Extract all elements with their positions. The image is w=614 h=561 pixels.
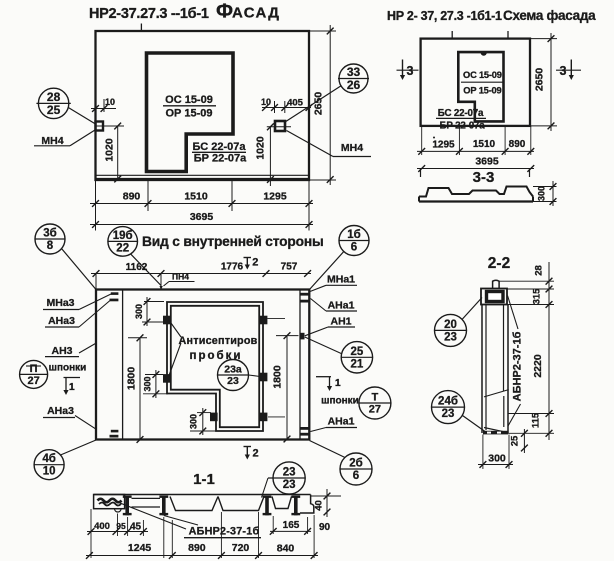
svg-text:Ф: Ф (216, 1, 233, 23)
svg-text:21: 21 (351, 358, 364, 370)
svg-text:24б: 24б (438, 396, 458, 408)
svg-text:АНа1: АНа1 (328, 416, 355, 428)
svg-text:1510: 1510 (473, 139, 496, 150)
svg-text:315: 315 (532, 288, 543, 305)
svg-text:БС 22-07а: БС 22-07а (192, 141, 246, 153)
svg-text:Вид с внутренней стороны: Вид с внутренней стороны (142, 234, 324, 249)
svg-text:Т: Т (372, 392, 379, 404)
svg-text:Схема фасада: Схема фасада (503, 8, 596, 23)
svg-text:23: 23 (283, 467, 296, 479)
svg-text:шпонки: шпонки (49, 363, 87, 374)
svg-text:1245: 1245 (128, 542, 152, 554)
svg-text:23а: 23а (224, 364, 242, 376)
svg-text:ОР 15-09: ОР 15-09 (165, 108, 212, 120)
svg-text:300: 300 (537, 186, 547, 201)
svg-text:45: 45 (130, 522, 142, 533)
svg-text:1: 1 (69, 381, 75, 393)
svg-text:2220: 2220 (532, 354, 544, 378)
svg-text:3: 3 (560, 64, 567, 78)
svg-text:АБНР2-37-1б: АБНР2-37-1б (189, 526, 260, 538)
svg-text:10: 10 (105, 97, 115, 107)
svg-text:2650: 2650 (534, 68, 546, 92)
svg-text:8: 8 (47, 240, 54, 252)
svg-text:28: 28 (534, 265, 545, 276)
svg-text:22: 22 (116, 242, 129, 254)
svg-text:3-3: 3-3 (473, 169, 495, 186)
svg-text:шпонки: шпонки (321, 396, 359, 407)
svg-text:3695: 3695 (190, 211, 214, 223)
svg-text:890: 890 (509, 139, 526, 150)
svg-text:ОС 15-09: ОС 15-09 (463, 70, 502, 80)
svg-text:3: 3 (407, 64, 414, 78)
svg-text:25: 25 (510, 435, 521, 446)
svg-text:840: 840 (277, 543, 295, 555)
svg-text:23: 23 (227, 375, 239, 387)
svg-text:1020: 1020 (103, 138, 115, 162)
svg-text:БР 22-07а: БР 22-07а (439, 120, 485, 131)
svg-text:АНа3: АНа3 (47, 405, 74, 417)
svg-text:МНа1: МНа1 (327, 274, 355, 286)
svg-text:300: 300 (134, 304, 144, 319)
svg-text:1020: 1020 (254, 136, 266, 160)
svg-text:27: 27 (27, 375, 39, 387)
svg-text:АН3: АН3 (51, 345, 72, 357)
svg-text:АНа3: АНа3 (48, 315, 75, 327)
svg-text:3б: 3б (43, 228, 57, 240)
svg-text:АНа1: АНа1 (328, 300, 355, 312)
svg-text:6: 6 (353, 470, 359, 482)
svg-text:890: 890 (123, 191, 141, 203)
svg-text:БС 22-07а: БС 22-07а (438, 108, 484, 119)
svg-text:33: 33 (347, 65, 361, 79)
svg-text:757: 757 (281, 262, 298, 273)
svg-text:405: 405 (287, 98, 304, 109)
svg-text:165: 165 (283, 520, 300, 531)
svg-text:3695: 3695 (475, 156, 499, 168)
svg-text:90: 90 (319, 522, 331, 533)
svg-text:1776: 1776 (221, 262, 244, 273)
svg-text:1800: 1800 (125, 367, 137, 391)
svg-text:НР 2- 37, 27.3 -1б1-1: НР 2- 37, 27.3 -1б1-1 (387, 9, 502, 23)
svg-text:26: 26 (347, 78, 361, 92)
svg-text:ОС 15-09: ОС 15-09 (165, 94, 213, 106)
svg-text:720: 720 (232, 542, 250, 554)
svg-text:10: 10 (43, 466, 56, 478)
svg-text:П: П (30, 363, 38, 375)
svg-text:2-2: 2-2 (488, 255, 510, 272)
svg-text:2: 2 (252, 448, 258, 460)
svg-text:1510: 1510 (184, 191, 208, 203)
svg-text:23: 23 (442, 408, 455, 420)
svg-text:1б: 1б (347, 229, 361, 241)
svg-text:4б: 4б (42, 453, 56, 465)
svg-text:25: 25 (351, 346, 364, 358)
svg-text:300: 300 (188, 414, 198, 429)
svg-text:20: 20 (444, 319, 457, 331)
svg-text:300: 300 (143, 376, 153, 391)
svg-text:1295: 1295 (432, 140, 455, 151)
svg-text:23: 23 (444, 331, 457, 343)
svg-text:27: 27 (369, 404, 381, 416)
svg-text:400: 400 (94, 521, 110, 532)
svg-text:1-1: 1-1 (193, 471, 215, 488)
svg-text:23: 23 (283, 479, 296, 491)
svg-text:Антисептиров: Антисептиров (179, 335, 258, 347)
svg-text:2: 2 (252, 257, 258, 269)
svg-text:БР 22-07а: БР 22-07а (194, 153, 247, 165)
svg-text:АСАД: АСАД (232, 5, 280, 22)
svg-text:ОР 15-09: ОР 15-09 (463, 86, 501, 96)
svg-text:1295: 1295 (263, 191, 287, 203)
svg-text:6: 6 (351, 242, 357, 254)
svg-text:19б: 19б (113, 230, 133, 242)
svg-text:890: 890 (188, 542, 206, 554)
svg-text:НР2-37.27.3 --1б-1: НР2-37.27.3 --1б-1 (89, 6, 209, 22)
svg-text:1: 1 (335, 377, 341, 389)
svg-text:МНа3: МНа3 (46, 297, 74, 309)
svg-text:25: 25 (47, 103, 61, 117)
svg-text:МН4: МН4 (341, 142, 363, 154)
svg-text:115: 115 (531, 412, 542, 428)
svg-text:95: 95 (116, 521, 126, 531)
svg-text:АН1: АН1 (330, 316, 351, 328)
svg-text:300: 300 (488, 453, 506, 465)
svg-text:40: 40 (314, 500, 325, 511)
svg-text:АБНР2-37-1б: АБНР2-37-1б (512, 331, 524, 401)
svg-text:1800: 1800 (272, 365, 284, 389)
svg-text:2б: 2б (349, 458, 363, 470)
svg-text:ПН4: ПН4 (172, 272, 189, 282)
svg-text:28: 28 (47, 90, 61, 104)
svg-text:10: 10 (261, 97, 271, 107)
